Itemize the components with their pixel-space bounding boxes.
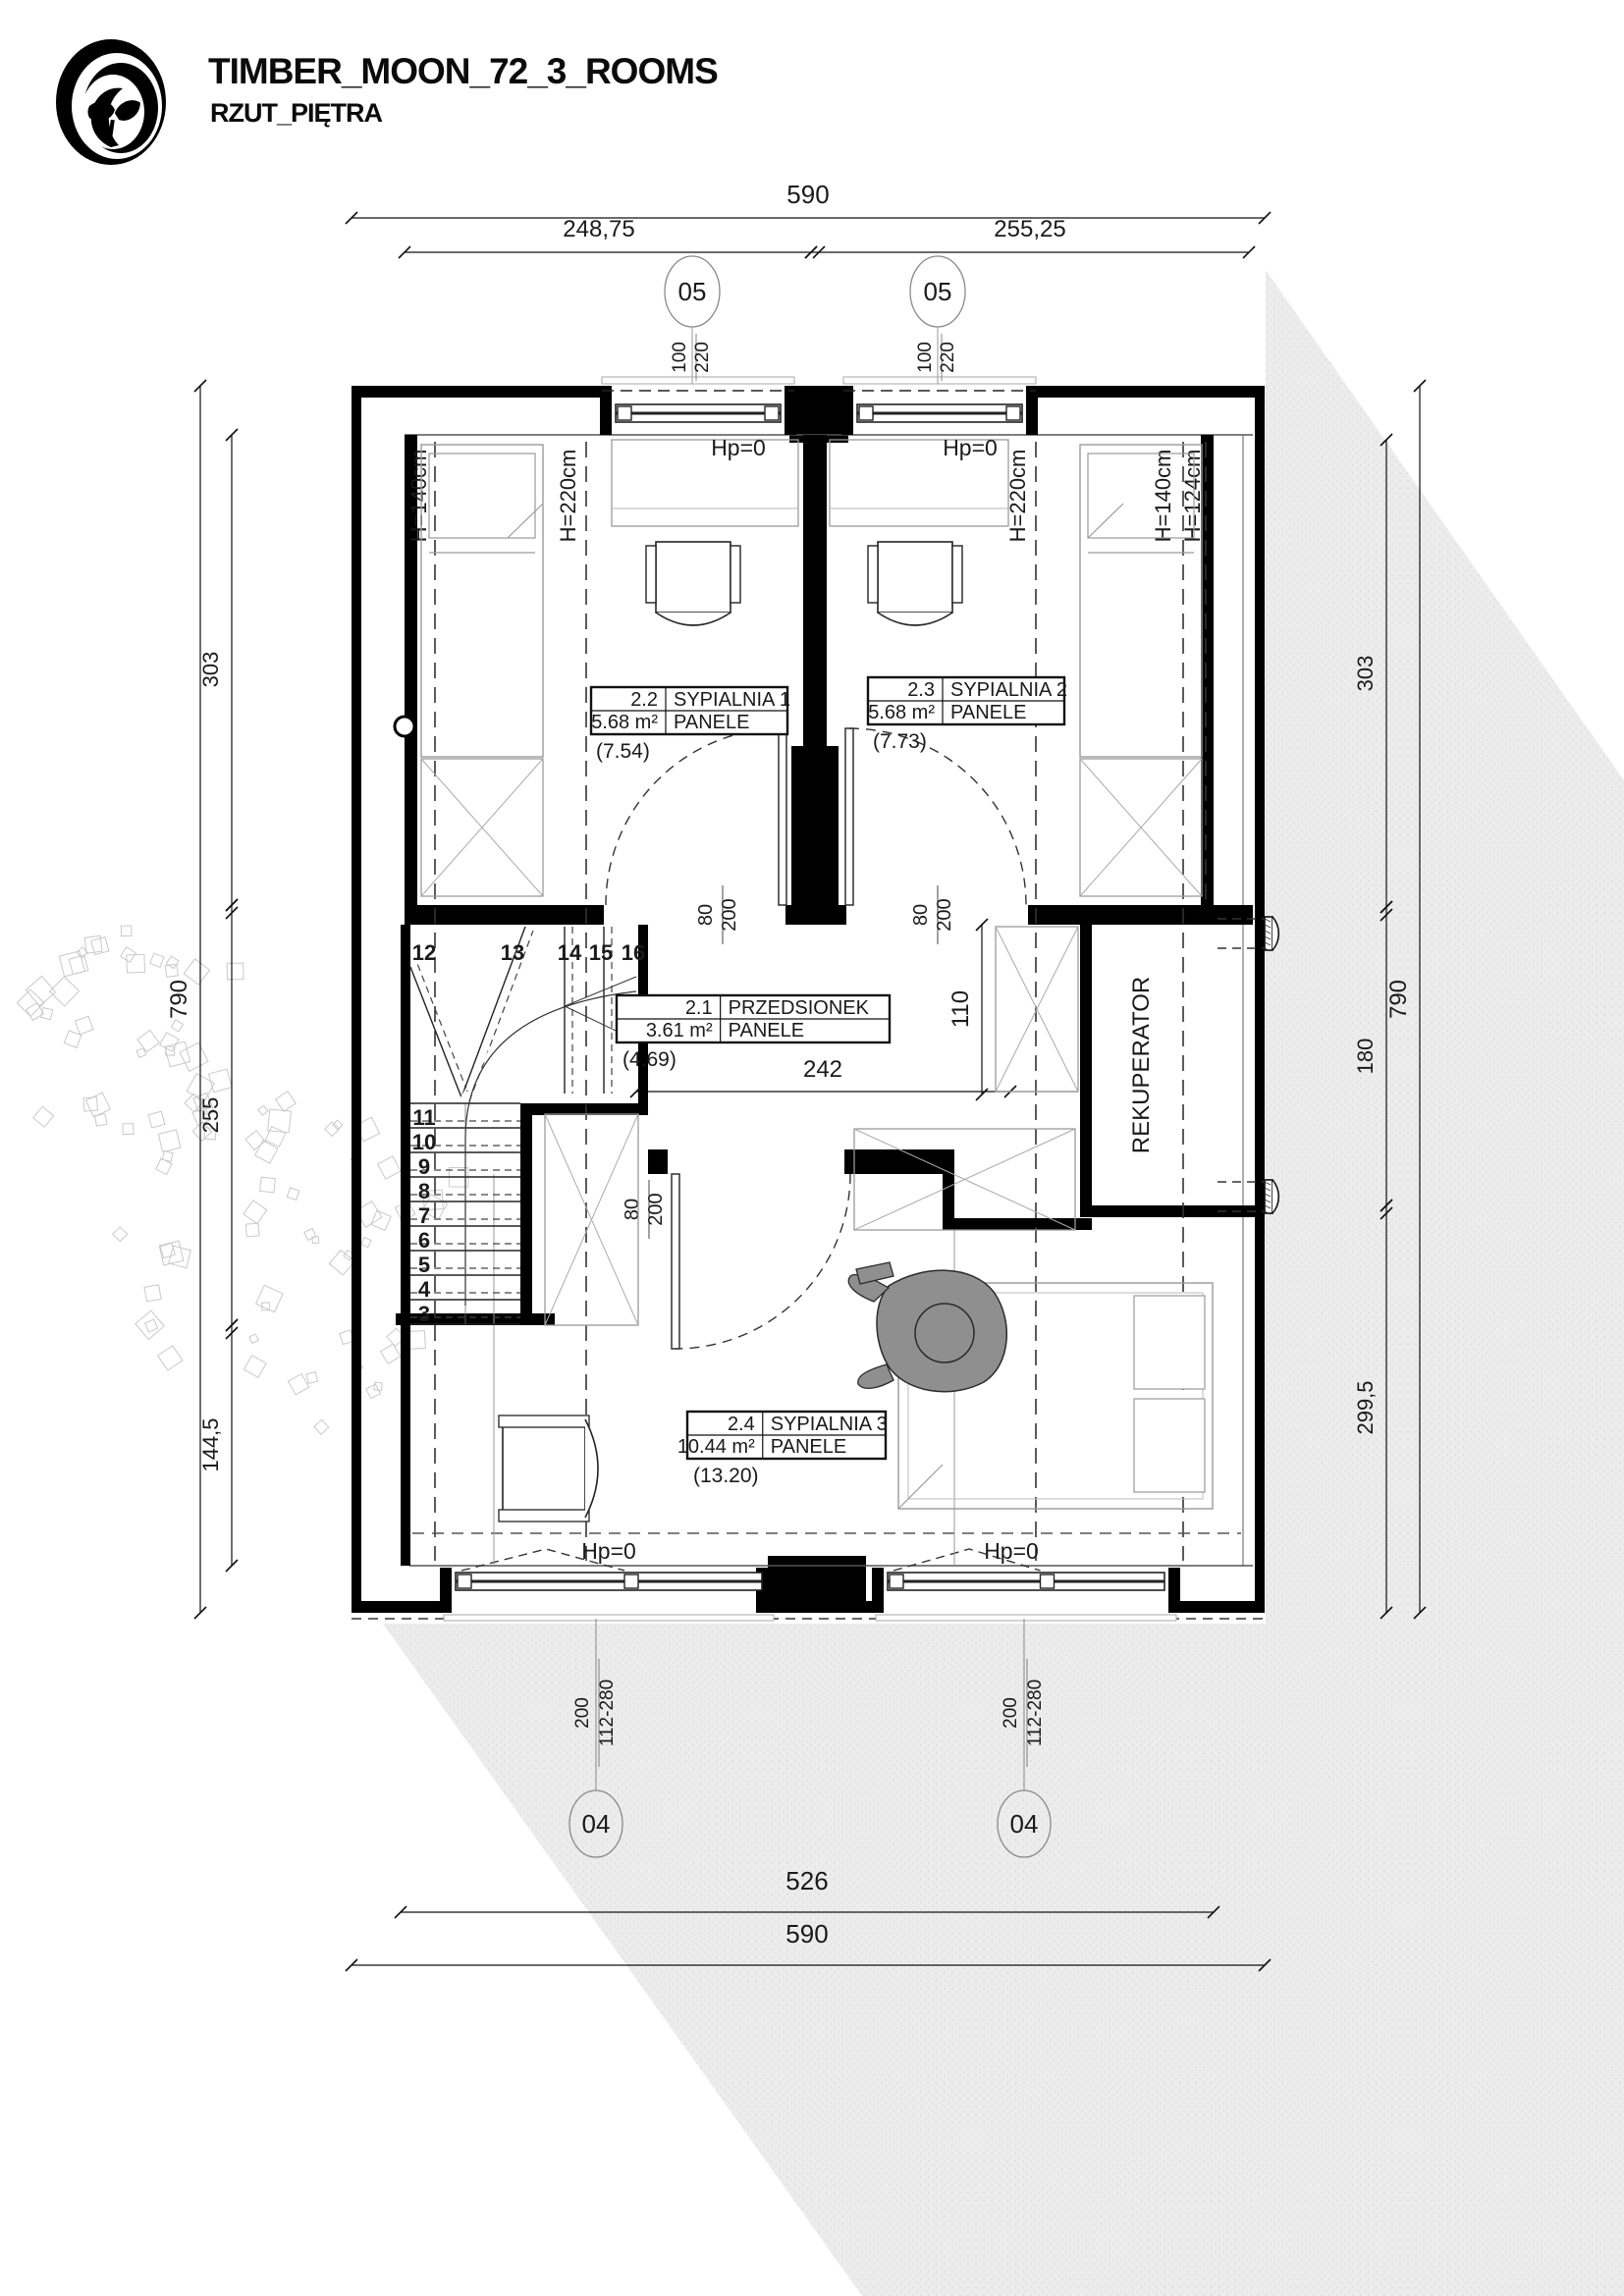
window-size-label: 112-280 — [1025, 1680, 1046, 1746]
tree-sketch — [123, 1124, 134, 1135]
height-label-h220: H=220cm — [1005, 450, 1030, 543]
tree-sketch — [75, 1016, 93, 1035]
vent-grille — [1265, 917, 1272, 950]
page-subtitle: RZUT_PIĘTRA — [210, 98, 382, 129]
height-label-h124: H=124cm — [1180, 450, 1205, 543]
page-title: TIMBER_MOON_72_3_ROOMS — [208, 51, 718, 92]
window-marker-code: 04 — [582, 1809, 611, 1839]
window-jamb — [841, 386, 853, 435]
tree-sketch — [165, 964, 178, 977]
person-head — [915, 1304, 974, 1362]
dim-bottom-inner: 526 — [785, 1866, 828, 1896]
wall-hall-south — [648, 1149, 668, 1174]
wall-rekuperator-left — [1080, 925, 1092, 1217]
stair-tread-number: 7 — [418, 1203, 430, 1228]
door-leaf — [845, 728, 853, 905]
tree-sketch — [180, 1042, 208, 1071]
window-jamb — [440, 1568, 452, 1613]
room-gross-area: (7.54) — [596, 740, 650, 763]
tree-sketch — [33, 1106, 54, 1127]
dim-right-seg: 180 — [1353, 1039, 1378, 1075]
room-area: 5.68 m² — [591, 712, 658, 733]
window-size-label: 220 — [938, 342, 958, 373]
dim-left-overall: 790 — [166, 980, 192, 1019]
wall-bottom — [352, 1601, 452, 1613]
window-marker-code: 04 — [1010, 1809, 1039, 1839]
chair-armrest — [646, 546, 656, 603]
room-number: 2.4 — [728, 1414, 755, 1435]
tree-sketch — [366, 1384, 381, 1399]
stair-tread-number: 16 — [622, 940, 645, 965]
stair-tread-number: 3 — [418, 1302, 430, 1326]
tree-sketch — [165, 1041, 190, 1067]
tree-sketch — [381, 1344, 401, 1363]
tree-sketch — [245, 1131, 265, 1150]
window-jamb — [872, 1568, 884, 1613]
hp-level-label: Hp=0 — [984, 1538, 1039, 1564]
dim-left-seg: 144,5 — [198, 1417, 223, 1471]
dim-hall-depth: 110 — [947, 990, 974, 1028]
tree-sketch — [258, 1105, 268, 1115]
armchair-seat — [503, 1425, 585, 1512]
bed-pillow — [1088, 454, 1194, 538]
window-jamb — [785, 386, 796, 435]
tree-sketch — [17, 989, 44, 1017]
tree-sketch — [208, 1069, 232, 1093]
room-finish: PANELE — [729, 1020, 804, 1041]
wall-bedrooms-south — [1028, 905, 1253, 925]
tree-sketch — [227, 963, 244, 980]
tree-sketch — [158, 1346, 183, 1370]
stair-tread-number: 10 — [412, 1130, 436, 1154]
wall-rekuperator-bottom — [1080, 1205, 1255, 1217]
door-size-label: 200 — [934, 898, 955, 931]
wall-stair-lower-right — [520, 1115, 532, 1325]
tree-sketch — [160, 1243, 175, 1257]
room-name: SYPIALNIA 3 — [771, 1414, 888, 1435]
tree-sketch — [306, 1372, 318, 1384]
chair-back — [656, 613, 731, 625]
wall-hall-south — [844, 1149, 954, 1174]
tree-sketch — [26, 976, 55, 1005]
tree-sketch — [288, 1374, 308, 1395]
bed — [421, 445, 543, 757]
window-handle — [618, 406, 631, 420]
dim-right-overall: 790 — [1385, 980, 1412, 1019]
room-area: 10.44 m² — [677, 1436, 755, 1458]
brand-logo-icon — [54, 37, 172, 167]
tree-sketch — [314, 1419, 329, 1434]
window-size-label: 200 — [1001, 1697, 1021, 1729]
wall-right — [1255, 386, 1265, 1613]
title-block: TIMBER_MOON_72_3_ROOMS RZUT_PIĘTRA — [0, 0, 1624, 187]
window-sill — [602, 377, 794, 384]
tree-sketch — [244, 1356, 266, 1378]
stair-walk-line — [465, 991, 636, 1306]
stair-winder-edge — [410, 967, 461, 1097]
window-sill — [444, 1615, 774, 1621]
stair-tread-number: 4 — [418, 1277, 431, 1302]
wall-center-partition — [803, 435, 827, 746]
room-name: SYPIALNIA 2 — [950, 679, 1067, 701]
tree-sketch — [333, 1120, 343, 1130]
window-handle — [624, 1575, 638, 1588]
window-sill — [876, 1615, 1176, 1621]
tree-sketch — [113, 1227, 128, 1242]
wall-top — [352, 386, 612, 398]
window-size-label: 100 — [915, 342, 936, 373]
tree-sketch — [329, 1250, 354, 1275]
window-jamb — [600, 386, 612, 435]
room-number: 2.1 — [685, 997, 713, 1019]
door-leaf — [672, 1174, 679, 1349]
tree-sketch — [148, 1111, 165, 1128]
wall-left — [352, 386, 361, 1613]
room-finish: PANELE — [674, 712, 749, 733]
tree-sketch — [145, 1319, 158, 1332]
chair-seat — [656, 542, 731, 613]
bed-fold — [898, 1465, 943, 1509]
person-shoe — [856, 1262, 893, 1284]
tree-sketch — [304, 1229, 316, 1241]
room-area: 5.68 m² — [868, 702, 935, 723]
room-finish: PANELE — [950, 702, 1026, 723]
person-hand — [858, 1364, 893, 1388]
bed-pillow-fold — [1088, 504, 1123, 538]
tree-sketch — [361, 1237, 371, 1247]
tree-sketch — [40, 1007, 52, 1019]
window-size-label: 100 — [670, 342, 690, 373]
window-jamb — [1168, 1568, 1180, 1613]
stair-tread-number: 9 — [418, 1154, 430, 1179]
tree-sketch — [378, 1156, 401, 1179]
room-area: 3.61 m² — [646, 1020, 713, 1041]
chair-armrest — [731, 546, 740, 603]
wall-center-stub — [791, 746, 839, 925]
tree-sketch — [169, 1246, 191, 1268]
window-handle — [1041, 1575, 1055, 1588]
dim-left-seg: 255 — [198, 1097, 223, 1134]
tree-sketch — [276, 1092, 297, 1112]
tree-sketch — [83, 1097, 98, 1112]
dim-top-right: 255,25 — [994, 216, 1065, 242]
door-swing-arc — [849, 728, 1026, 905]
room-gross-area: (7.73) — [873, 730, 927, 753]
vent-grille — [1265, 1180, 1272, 1213]
door-size-label: 200 — [719, 898, 740, 931]
height-label-h140: H=140cm — [406, 450, 431, 543]
stair-tread-number: 13 — [501, 940, 524, 965]
stair-tread-number: 15 — [589, 940, 613, 965]
door-swing-arc — [676, 1174, 850, 1349]
hp-level-label: Hp=0 — [581, 1538, 636, 1564]
tree-sketch — [127, 954, 145, 973]
vent-pipe-circle — [395, 717, 414, 736]
window-handle — [765, 406, 779, 420]
tree-sketch — [85, 1093, 110, 1117]
wall-stair-left — [401, 925, 410, 1325]
window-jamb — [1026, 386, 1038, 435]
dim-right-seg: 303 — [1353, 656, 1378, 692]
bed-pillow — [429, 454, 535, 538]
window-handle — [1006, 406, 1020, 420]
door-size-label: 80 — [622, 1199, 643, 1220]
wall-top — [1026, 386, 1265, 398]
tree-sketch — [160, 1033, 179, 1051]
room-name: PRZEDSIONEK — [729, 997, 870, 1019]
chair-armrest — [868, 546, 878, 603]
armchair-arm — [499, 1510, 589, 1522]
stair-tread-number: 14 — [558, 940, 582, 965]
dim-top-left: 248,75 — [563, 216, 634, 242]
tree-sketch — [50, 977, 80, 1006]
tree-sketch — [287, 1188, 298, 1200]
room-number: 2.2 — [630, 689, 658, 711]
wall-step — [943, 1174, 954, 1230]
window-size-label: 200 — [572, 1697, 593, 1729]
dim-hall-width: 242 — [803, 1056, 842, 1083]
room-finish: PANELE — [771, 1436, 846, 1458]
room-gross-area: (4.69) — [623, 1048, 677, 1071]
window-sill — [843, 377, 1036, 384]
height-label-h220: H=220cm — [556, 450, 580, 543]
tree-sketch — [245, 1223, 259, 1237]
wall-room24-west — [401, 1325, 410, 1566]
tree-sketch — [95, 1114, 107, 1126]
chair-seat — [878, 542, 952, 613]
door-size-label: 80 — [910, 904, 932, 926]
tree-sketch — [150, 953, 164, 967]
window-marker-code: 05 — [678, 277, 707, 306]
tree-sketch — [244, 1201, 267, 1224]
room-number: 2.3 — [907, 679, 935, 701]
tree-sketch — [144, 1285, 161, 1302]
wall-stair-jog — [520, 1103, 648, 1115]
hp-level-label: Hp=0 — [711, 435, 766, 460]
tree-sketch — [249, 1334, 258, 1343]
door-leaf — [779, 728, 786, 905]
room-name: SYPIALNIA 1 — [674, 689, 790, 711]
door-size-label: 200 — [645, 1193, 667, 1225]
chair-back — [878, 613, 952, 625]
dim-right-seg: 299,5 — [1353, 1380, 1378, 1434]
hp-level-label: Hp=0 — [943, 435, 998, 460]
dim-left-seg: 303 — [198, 652, 223, 688]
window-size-label: 112-280 — [597, 1680, 618, 1746]
chimney-block-bottom — [768, 1556, 866, 1613]
tree-sketch — [64, 1031, 81, 1047]
window-handle — [890, 1575, 903, 1588]
window-marker-code: 05 — [924, 277, 952, 306]
tree-sketch — [268, 1109, 292, 1133]
tree-sketch — [158, 1130, 181, 1152]
bed-pillow — [1134, 1399, 1205, 1492]
window-handle — [859, 406, 873, 420]
bed-pillow — [1134, 1296, 1205, 1389]
armchair-arm — [499, 1415, 589, 1427]
tree-sketch — [371, 1210, 391, 1230]
floor-plan-canvas: 590248,75255,25790303255144,579030318029… — [0, 0, 1624, 2296]
stair-winder-dashed — [416, 961, 467, 1092]
stair-tread-number: 6 — [418, 1228, 430, 1253]
armchair-back — [585, 1419, 598, 1518]
tree-sketch — [135, 1310, 164, 1339]
tree-sketch — [121, 926, 132, 936]
window-handle — [458, 1575, 471, 1588]
desk — [612, 440, 798, 526]
tree-sketch — [171, 1020, 183, 1032]
rekuperator-label: REKUPERATOR — [1128, 977, 1155, 1153]
tree-sketch — [260, 1177, 276, 1193]
chair-armrest — [952, 546, 962, 603]
dim-bottom-total: 590 — [785, 1919, 828, 1949]
stair-tread-number: 5 — [418, 1253, 430, 1277]
window-size-label: 220 — [692, 342, 713, 373]
door-size-label: 80 — [695, 904, 717, 926]
stair-tread-number: 11 — [412, 1105, 435, 1130]
stair-tread-number: 12 — [412, 940, 436, 965]
wall-bottom — [1168, 1601, 1265, 1613]
room-gross-area: (13.20) — [693, 1465, 759, 1487]
tree-sketch — [69, 955, 88, 975]
height-label-h140: H=140cm — [1151, 450, 1175, 543]
stair-tread-number: 8 — [418, 1179, 430, 1203]
bed-pillow-fold — [508, 504, 543, 538]
tree-sketch — [91, 937, 109, 955]
